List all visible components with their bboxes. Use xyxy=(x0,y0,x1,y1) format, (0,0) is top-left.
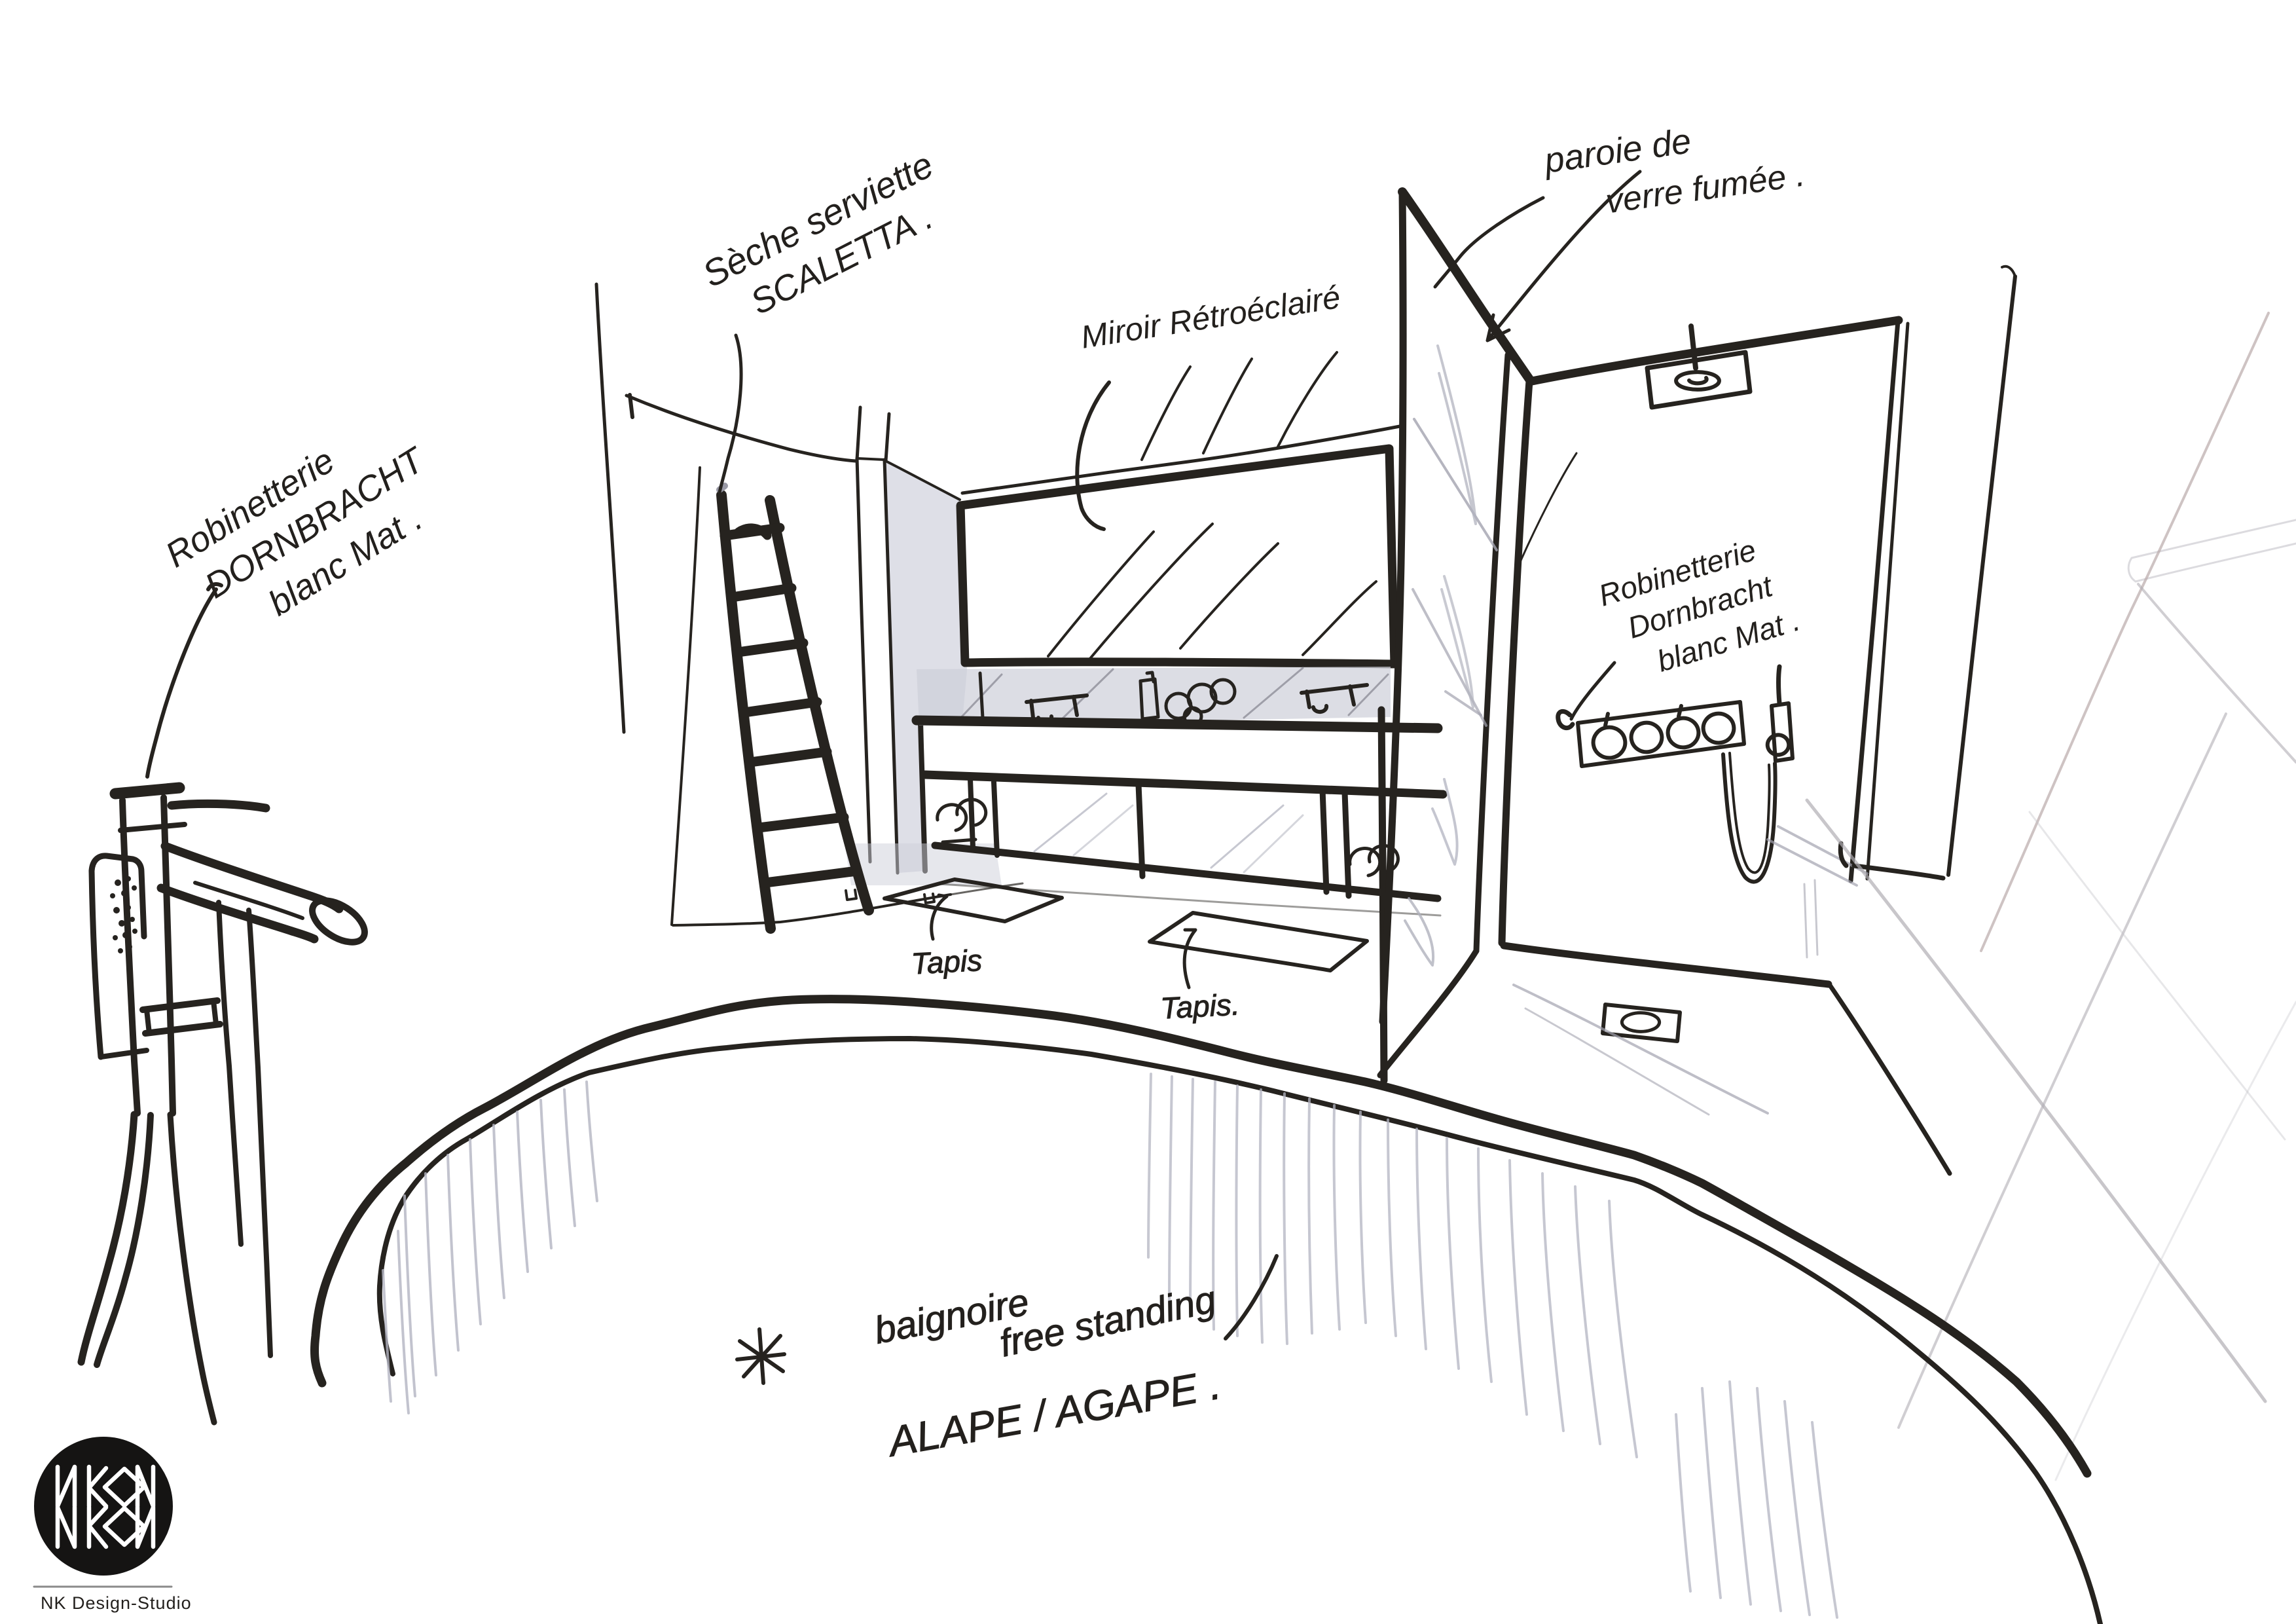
svg-text:Tapis: Tapis xyxy=(911,943,983,981)
svg-text:Tapis.: Tapis. xyxy=(1159,987,1241,1025)
svg-text:NK Design-Studio: NK Design-Studio xyxy=(41,1593,192,1613)
